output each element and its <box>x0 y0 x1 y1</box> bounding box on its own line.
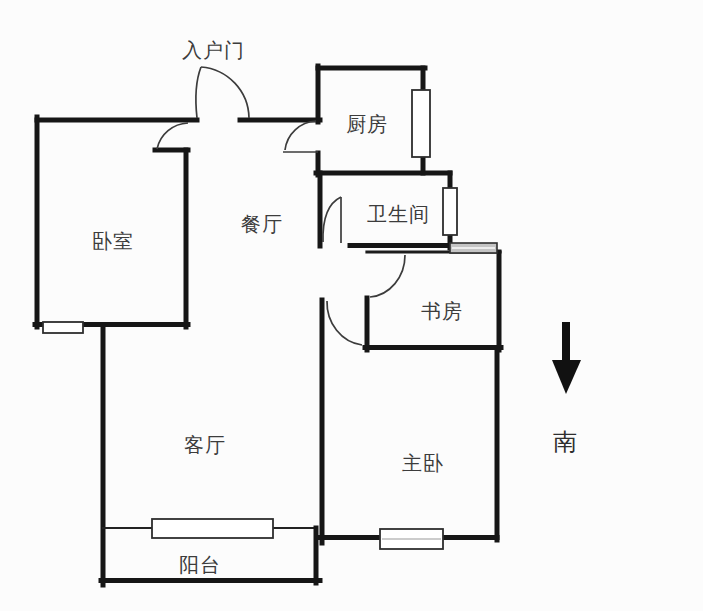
label-south: 南 <box>553 428 577 455</box>
master-door-arc <box>327 301 362 345</box>
window-bathroom <box>443 188 457 235</box>
floor-plan-image: 入户门 厨房 卫生间 书房 餐厅 卧室 客厅 主卧 阳台 南 <box>0 0 703 611</box>
kitchen-door-arc <box>285 121 316 150</box>
entry-door-leaf <box>196 67 201 118</box>
label-entry-door: 入户门 <box>182 39 245 61</box>
study-door-arc <box>370 255 405 297</box>
label-living-room: 客厅 <box>184 434 226 456</box>
bedroom-door-arc <box>157 123 188 149</box>
label-master-bedroom: 主卧 <box>402 452 444 474</box>
south-arrow-icon <box>552 322 581 394</box>
bathroom-door-arc <box>323 197 341 242</box>
window-living-balcony <box>152 519 273 538</box>
entry-door-arc <box>201 67 249 118</box>
label-dining: 餐厅 <box>241 213 283 235</box>
floor-plan-canvas: 入户门 厨房 卫生间 书房 餐厅 卧室 客厅 主卧 阳台 南 <box>0 0 703 611</box>
label-bathroom: 卫生间 <box>367 203 430 225</box>
label-study: 书房 <box>421 300 463 322</box>
window-bedroom <box>43 322 83 333</box>
label-bedroom: 卧室 <box>92 230 134 252</box>
south-arrow-head <box>552 360 581 394</box>
label-balcony: 阳台 <box>179 554 221 576</box>
label-kitchen: 厨房 <box>346 113 388 135</box>
window-kitchen <box>412 90 430 157</box>
